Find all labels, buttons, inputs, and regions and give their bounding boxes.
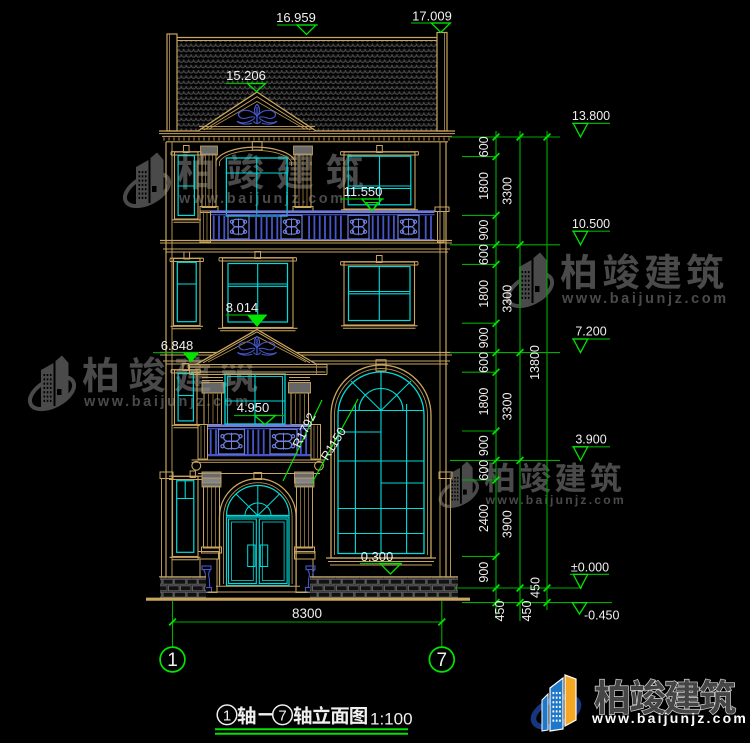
svg-text:3.900: 3.900 [575,432,606,446]
svg-text:1800: 1800 [477,172,491,200]
svg-text:13.800: 13.800 [572,109,610,123]
svg-text:11.550: 11.550 [344,184,383,199]
svg-text:7: 7 [278,707,286,724]
svg-text:1800: 1800 [477,280,491,308]
svg-text:4.950: 4.950 [237,400,270,415]
svg-text:17.009: 17.009 [412,9,452,24]
svg-text:8300: 8300 [292,606,322,621]
svg-text:600: 600 [477,460,491,481]
svg-text:1: 1 [223,707,231,724]
svg-text:450: 450 [529,577,543,598]
svg-text:3300: 3300 [501,393,515,421]
svg-text:3300: 3300 [501,285,515,313]
svg-text:±0.000: ±0.000 [571,560,609,574]
svg-text:3300: 3300 [501,177,515,205]
svg-text:600: 600 [477,244,491,265]
svg-text:450: 450 [520,601,534,622]
svg-text:www.baijunjz.com: www.baijunjz.com [178,191,346,207]
svg-text:10.500: 10.500 [572,217,610,231]
svg-text:-0.450: -0.450 [584,609,619,623]
svg-text:1: 1 [167,650,178,671]
svg-text:1800: 1800 [477,388,491,416]
svg-text:8.014: 8.014 [226,300,259,315]
svg-text:900: 900 [477,327,491,348]
svg-text:15.206: 15.206 [226,68,266,83]
svg-text:900: 900 [477,220,491,241]
svg-text:3900: 3900 [501,510,515,538]
svg-text:www.baijunjz.com: www.baijunjz.com [591,710,748,726]
svg-text:1:100: 1:100 [370,710,413,729]
svg-text:6.848: 6.848 [161,338,194,353]
svg-text:www.baijunjz.com: www.baijunjz.com [561,291,729,307]
svg-text:13800: 13800 [528,345,542,380]
svg-text:600: 600 [477,352,491,373]
svg-text:0.300: 0.300 [361,549,394,564]
svg-text:7.200: 7.200 [575,325,606,339]
svg-text:900: 900 [477,435,491,456]
svg-text:2400: 2400 [477,504,491,532]
svg-text:7: 7 [437,650,448,671]
svg-text:16.959: 16.959 [276,10,316,25]
svg-text:450: 450 [493,601,507,622]
svg-text:600: 600 [477,136,491,157]
svg-text:www.baijunjz.com: www.baijunjz.com [485,493,626,507]
svg-text:900: 900 [477,562,491,583]
